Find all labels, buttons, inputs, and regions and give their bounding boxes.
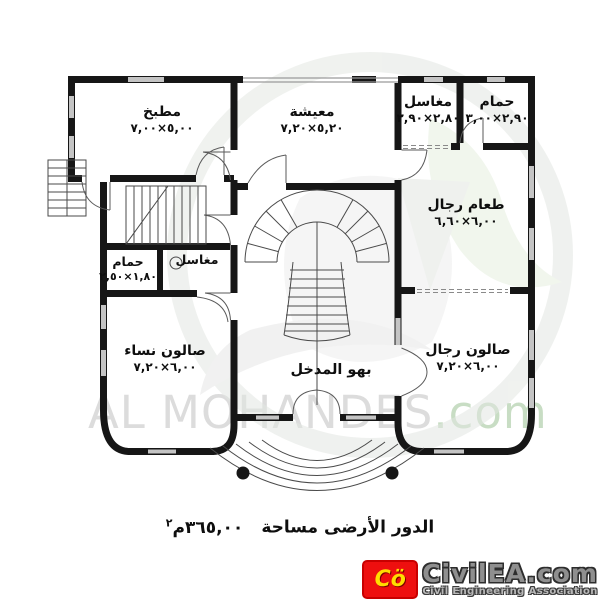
civilea-site-name: CivilEA.com: [422, 562, 598, 585]
room-dims: ٢,٨٠×٢,٩٠: [396, 111, 459, 127]
caption-label: الدور الأرضى مساحة: [261, 518, 434, 538]
floorplan-svg: [0, 0, 600, 600]
room-name: بهو المدخل: [290, 361, 371, 380]
room-name: مغاسل: [176, 252, 219, 268]
room-name: صالون رجال: [425, 341, 510, 359]
room-name: حمام: [99, 254, 157, 270]
caption-area-value: ٣٦٥,٠٠: [185, 518, 243, 538]
civilea-subtitle: Civil Engineering Association: [422, 585, 597, 598]
room-label-living: معيشة ٥,٢٠×٧,٢٠: [280, 103, 343, 137]
civilea-logo-text: CivilEA.com Civil Engineering Associatio…: [422, 562, 598, 598]
caption-unit: م: [173, 518, 185, 538]
room-label-kitchen: مطبخ ٥,٠٠×٧,٠٠: [130, 103, 193, 137]
floor-plan-page: AL MOHANDES.com: [0, 0, 600, 600]
caption-figure: ٣٦٥,٠٠م٢: [166, 518, 244, 538]
room-label-dining-men: طعام رجال ٦,٠٠×٦,٦٠: [427, 196, 504, 230]
caption-superscript: ٢: [166, 516, 173, 529]
room-dims: ٦,٠٠×٧,٢٠: [425, 359, 510, 375]
room-label-entry-hall: بهو المدخل: [290, 361, 371, 380]
room-name: حمام: [465, 93, 528, 111]
room-label-sinks-top: مغاسل ٢,٨٠×٢,٩٠: [396, 93, 459, 127]
room-name: معيشة: [280, 103, 343, 121]
room-label-sinks-small: مغاسل: [176, 252, 219, 268]
room-label-salon-men: صالون رجال ٦,٠٠×٧,٢٠: [425, 341, 510, 375]
room-name: مطبخ: [130, 103, 193, 121]
room-label-bath-top: حمام ٢,٩٠×٣,٠٠: [465, 93, 528, 127]
civilea-logo: Cö CivilEA.com Civil Engineering Associa…: [362, 560, 598, 599]
room-name: مغاسل: [396, 93, 459, 111]
room-dims: ٢,٩٠×٣,٠٠: [465, 111, 528, 127]
stairs-service: [48, 160, 86, 216]
civilea-logo-mark: Cö: [362, 560, 418, 599]
room-name: طعام رجال: [427, 196, 504, 214]
room-dims: ٦,٠٠×٦,٦٠: [427, 214, 504, 230]
room-label-salon-women: صالون نساء ٦,٠٠×٧,٢٠: [124, 342, 206, 376]
area-caption: الدور الأرضى مساحة٣٦٥,٠٠م٢: [0, 516, 600, 538]
room-name: صالون نساء: [124, 342, 206, 360]
room-dims: ٥,٠٠×٧,٠٠: [130, 121, 193, 137]
room-label-bath-small: حمام ١,٨٠×٢,٥٠: [99, 254, 157, 285]
room-dims: ٦,٠٠×٧,٢٠: [124, 360, 206, 376]
room-dims: ٥,٢٠×٧,٢٠: [280, 121, 343, 137]
room-dims: ١,٨٠×٢,٥٠: [99, 270, 157, 284]
